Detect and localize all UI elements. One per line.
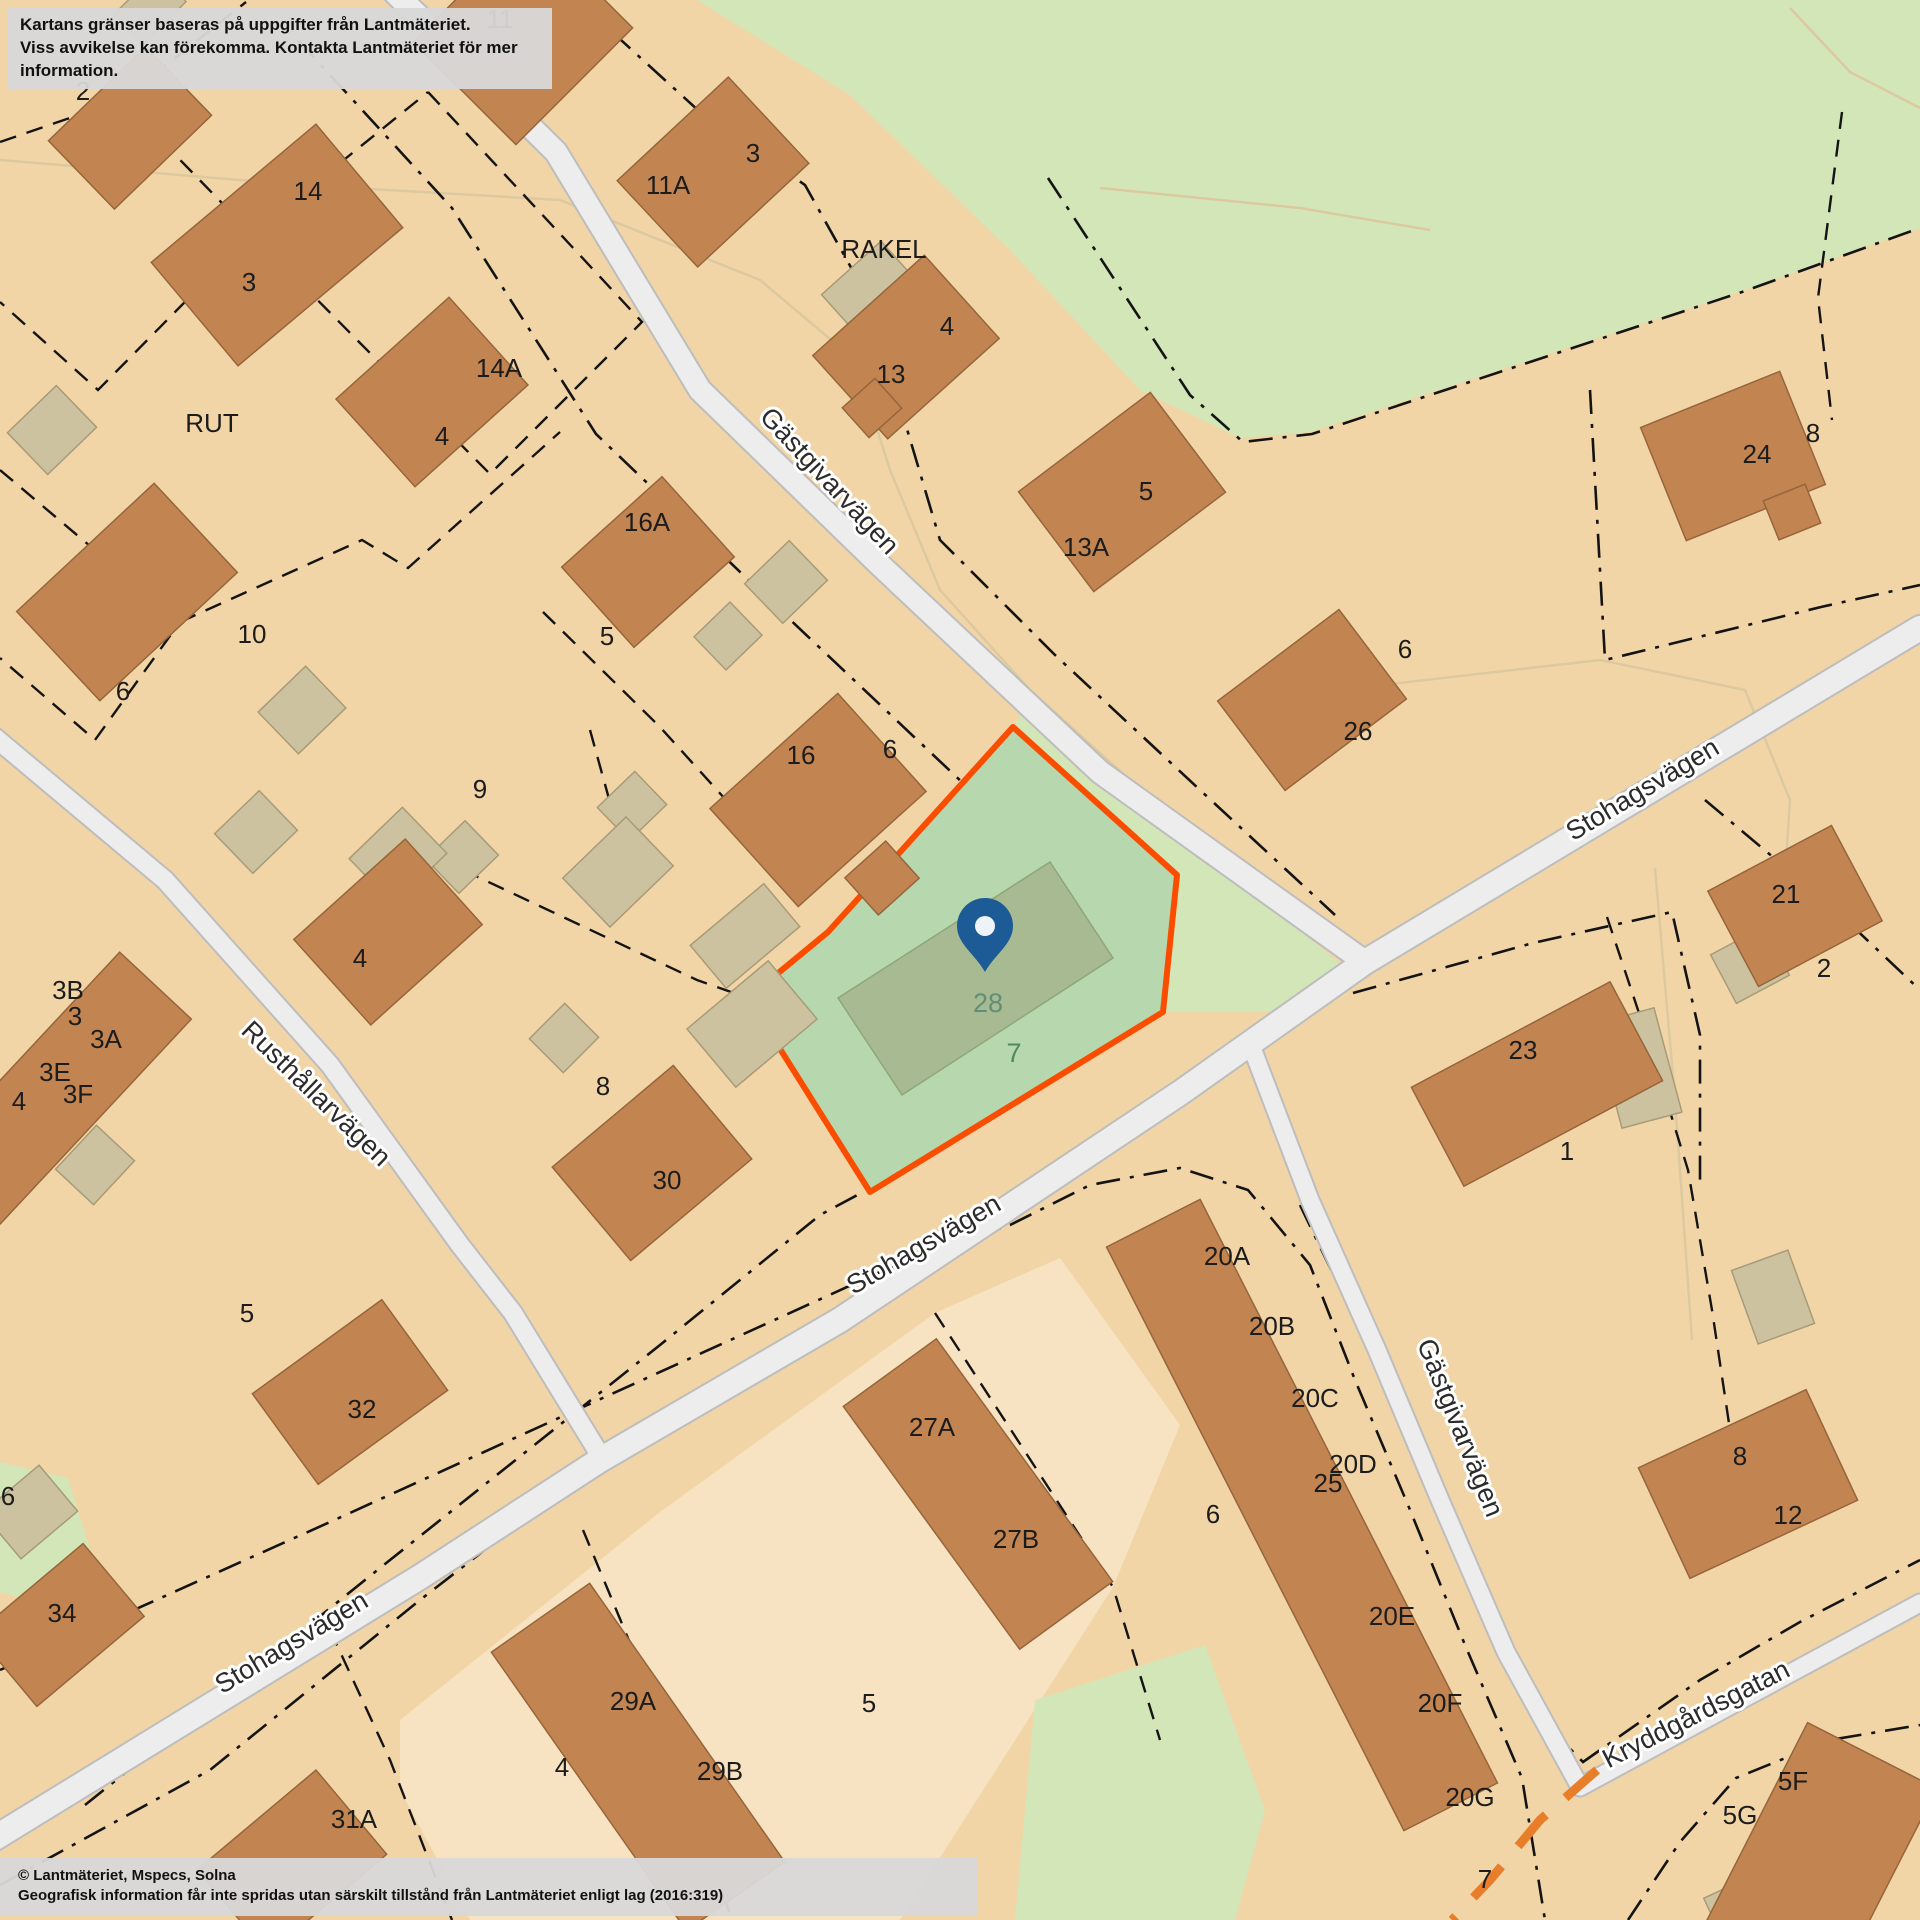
map-stage: GästgivarvägenStohagsvägenRusthållarväge… (0, 0, 1920, 1920)
parcel-label: 27B (993, 1524, 1039, 1554)
attribution-line: Geografisk information får inte spridas … (18, 1886, 970, 1906)
parcel-label: 6 (883, 734, 897, 764)
parcel-label: 32 (348, 1394, 377, 1424)
disclaimer-line: Viss avvikelse kan förekomma. Kontakta L… (20, 37, 540, 83)
parcel-label: 12 (1774, 1500, 1803, 1530)
parcel-label: 34 (48, 1598, 77, 1628)
parcel-label: 3 (242, 267, 256, 297)
parcel-label: 8 (1806, 418, 1820, 448)
parcel-label: 13 (877, 359, 906, 389)
parcel-label: 26 (1344, 716, 1373, 746)
parcel-label: 3A (90, 1024, 122, 1054)
parcel-label: 5F (1778, 1766, 1808, 1796)
parcel-label: 4 (555, 1752, 569, 1782)
parcel-label: 9 (473, 774, 487, 804)
parcel-label: 5 (240, 1298, 254, 1328)
parcel-label: 29A (610, 1686, 657, 1716)
parcel-label: 6 (116, 676, 130, 706)
parcel-label: 2 (1817, 953, 1831, 983)
parcel-label: 23 (1509, 1035, 1538, 1065)
attribution-line: © Lantmäteriet, Mspecs, Solna (18, 1866, 970, 1886)
parcel-label: RAKEL (841, 234, 926, 264)
parcel-label: 8 (596, 1071, 610, 1101)
parcel-label: 3 (68, 1001, 82, 1031)
highlight-area-label: 28 (973, 988, 1003, 1018)
parcel-label: 5 (1139, 476, 1153, 506)
parcel-label: 20B (1249, 1311, 1295, 1341)
parcel-label: 6 (1398, 634, 1412, 664)
parcel-label: 1 (1560, 1136, 1574, 1166)
parcel-label: 6 (1206, 1499, 1220, 1529)
parcel-label: 8 (1733, 1441, 1747, 1471)
parcel-label: 4 (12, 1086, 26, 1116)
parcel-label: 5G (1723, 1800, 1758, 1830)
parcel-label: 4 (435, 421, 449, 451)
parcel-label: 6 (1, 1481, 15, 1511)
disclaimer-line: Kartans gränser baseras på uppgifter frå… (20, 14, 540, 37)
parcel-label: 11A (646, 170, 691, 200)
map-attribution: © Lantmäteriet, Mspecs, Solna Geografisk… (0, 1858, 978, 1917)
parcel-label: 5 (862, 1688, 876, 1718)
parcel-label: 3 (746, 138, 760, 168)
parcel-label: 10 (238, 619, 267, 649)
parcel-label: 7 (1478, 1864, 1492, 1894)
parcel-label: 16A (624, 507, 671, 537)
parcel-label: 4 (353, 943, 367, 973)
map-disclaimer-top: Kartans gränser baseras på uppgifter frå… (8, 8, 552, 89)
parcel-label: 30 (653, 1165, 682, 1195)
parcel-label: 20G (1445, 1782, 1494, 1812)
parcel-label: 5 (600, 621, 614, 651)
parcel-label: 4 (940, 311, 954, 341)
parcel-label: 27A (909, 1412, 956, 1442)
parcel-label: 20A (1204, 1241, 1251, 1271)
parcel-label: 16 (787, 740, 816, 770)
parcel-label: 13A (1063, 532, 1110, 562)
parcel-label: 21 (1772, 879, 1801, 909)
parcel-label: 3F (63, 1079, 93, 1109)
parcel-label: 31A (331, 1804, 378, 1834)
map[interactable]: GästgivarvägenStohagsvägenRusthållarväge… (0, 0, 1920, 1920)
parcel-label: 25 (1314, 1468, 1343, 1498)
parcel-label: 24 (1743, 439, 1772, 469)
highlight-parcel-label: 7 (1006, 1038, 1021, 1068)
parcel-label: RUT (185, 408, 239, 438)
parcel-label: 14A (476, 353, 523, 383)
parcel-label: 14 (294, 176, 323, 206)
parcel-label: 20E (1369, 1601, 1415, 1631)
parcel-label: 20F (1418, 1688, 1463, 1718)
parcel-label: 20C (1291, 1383, 1339, 1413)
parcel-label: 29B (697, 1756, 743, 1786)
